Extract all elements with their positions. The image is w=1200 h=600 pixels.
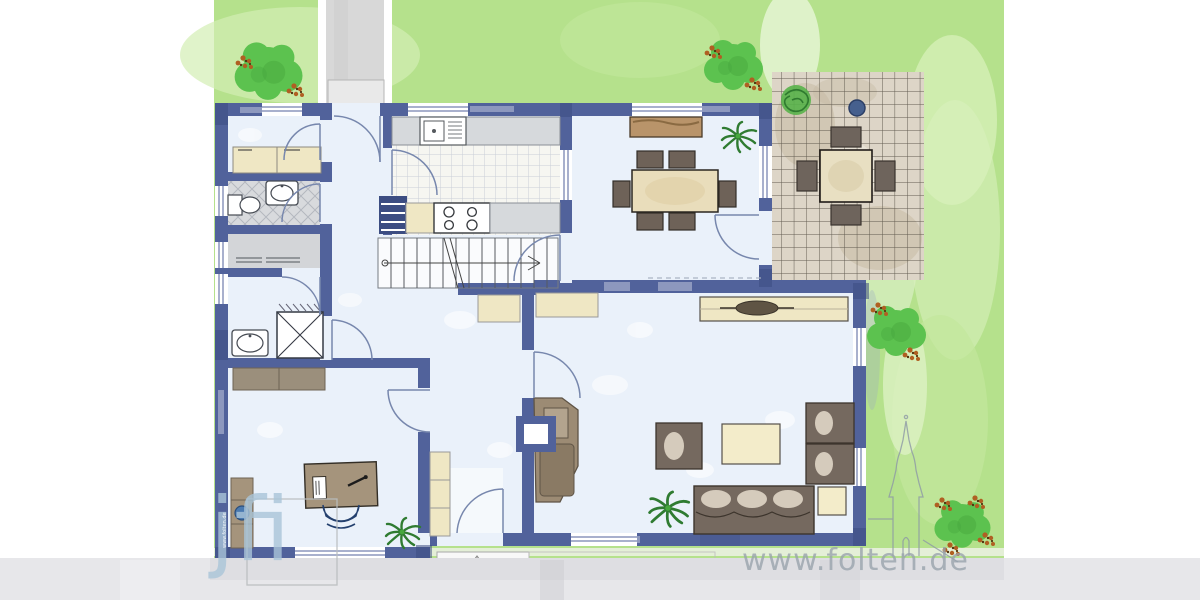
dining-chair [637,213,663,230]
desk [304,462,377,508]
storage-room-floor [228,234,320,268]
side-table [818,487,846,515]
window-west-3 [215,274,228,304]
understairs-shelf [379,196,407,234]
floor-plan-page: www.folten.de jfi www.folten.de [0,0,1200,600]
passthrough-kitchen-dining [560,150,572,200]
wall-copyright-text: www.folten.de [222,512,228,548]
hall-cupboard [478,295,520,322]
window-dining-east [759,146,772,198]
armchair-east-1 [806,403,854,443]
patio-chair-south [831,205,861,225]
living-closet [536,293,598,317]
wall-east-living [853,283,866,546]
coffee-table [722,424,780,464]
utility-room [233,147,321,173]
dining-chair [719,181,736,207]
kitchen-sink [420,117,466,145]
kitchen-counter-top [392,117,560,145]
armchair-tv [656,423,702,469]
dining-chair [669,151,695,168]
wall-hall-living [522,290,534,533]
table-lamp [736,301,778,315]
north-entrance-step [328,80,384,104]
patio-chair-west [797,161,817,191]
terrace-umbrella-base [849,100,865,116]
bottom-strip [0,558,1200,600]
garden-path [318,0,392,104]
kitchen-counter-right [490,203,560,233]
floor-plan-rendering: www.folten.de jfi www.folten.de [0,0,1200,600]
sofa [694,486,814,534]
window-west-2 [215,242,228,268]
window-utility-north [262,103,302,116]
wall-wc-storage [215,225,332,234]
toilet [228,195,260,215]
wall-living-north [534,280,866,293]
armchair-east-2 [806,444,854,484]
shower [277,304,323,358]
watermark-logo-text: jfi [208,478,290,581]
watermark-url: www.folten.de [742,543,969,578]
terrace-shrub [781,85,811,115]
chimney [516,416,556,452]
patio-chair-east [875,161,895,191]
house [215,103,869,586]
sideboard-with-lamp [700,297,848,321]
kitchen-cabinet [406,203,434,233]
window-west-1 [215,186,228,216]
dining-chair [669,213,695,230]
terrace [772,72,924,280]
window-dining-north [632,103,702,116]
dining-chair [637,151,663,168]
window-living-east-1 [853,328,866,366]
dining-chair [613,181,630,207]
window-living-east-2 [853,448,866,486]
wc-sink [266,181,298,205]
stove [434,203,490,233]
dining-sideboard [630,117,702,137]
window-living-south [571,533,637,546]
window-kitchen-north [408,103,468,116]
bath-sink [232,330,268,356]
hall-closet [430,452,450,536]
patio-chair-north [831,127,861,147]
